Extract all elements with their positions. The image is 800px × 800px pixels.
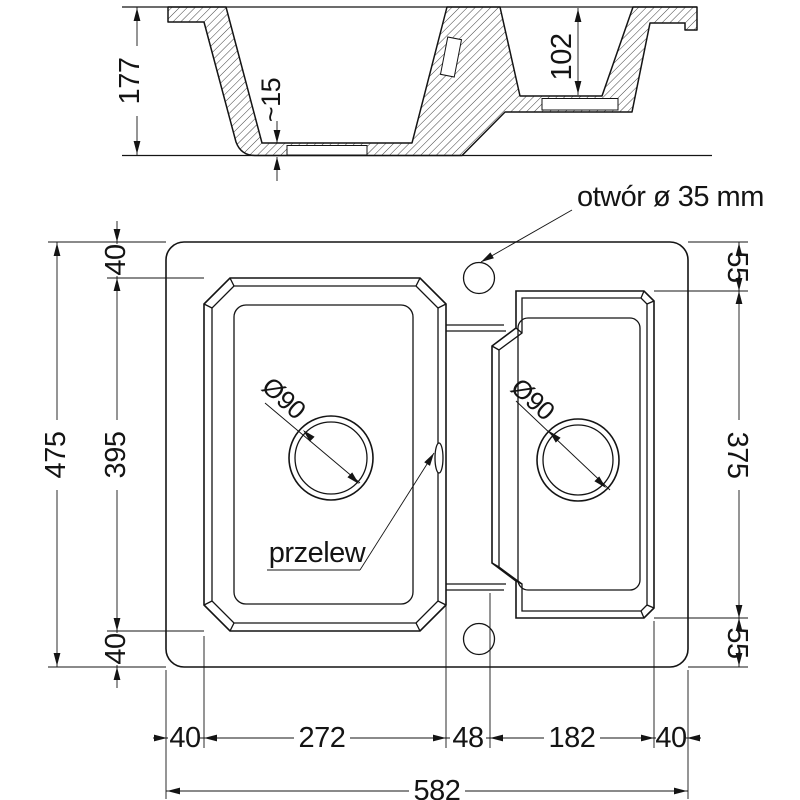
section-view — [122, 7, 712, 181]
dim-right-top-margin: 55 — [721, 251, 753, 282]
small-bowl-drain-recess — [542, 99, 618, 111]
dim-right-bowl-length: 375 — [721, 432, 753, 479]
dim-main-bowl-width: 272 — [299, 722, 346, 754]
sink-technical-drawing-page: 177 102 ~15 475 40 395 40 55 375 55 40 2… — [0, 0, 800, 800]
overflow-opening — [435, 443, 443, 473]
overflow-label: przelew — [269, 537, 367, 569]
dim-bottom-left-margin: 40 — [169, 722, 200, 754]
dim-small-bowl-depth: 102 — [546, 34, 578, 81]
plan-view — [166, 210, 688, 667]
dim-right-bottom-margin: 55 — [721, 627, 753, 658]
technical-drawing-canvas: 177 102 ~15 475 40 395 40 55 375 55 40 2… — [0, 0, 800, 800]
dim-drain-recess: ~15 — [256, 78, 286, 122]
dim-left-bowl-length: 395 — [100, 432, 132, 479]
dim-left-top-margin: 40 — [100, 244, 132, 275]
section-body-hatched — [168, 7, 697, 156]
main-bowl-drain-recess — [287, 146, 367, 156]
dim-bottom-right-margin: 40 — [655, 722, 686, 754]
dim-divider-width: 48 — [452, 722, 483, 754]
dim-left-overall: 475 — [40, 432, 72, 479]
faucet-hole-note: otwór ø 35 mm — [577, 181, 764, 213]
dim-left-bottom-margin: 40 — [100, 633, 132, 664]
dim-overall-height: 177 — [114, 58, 146, 105]
dim-bottom-overall: 582 — [414, 775, 461, 800]
faucet-hole-top — [464, 263, 495, 294]
dim-small-bowl-width: 182 — [549, 722, 596, 754]
